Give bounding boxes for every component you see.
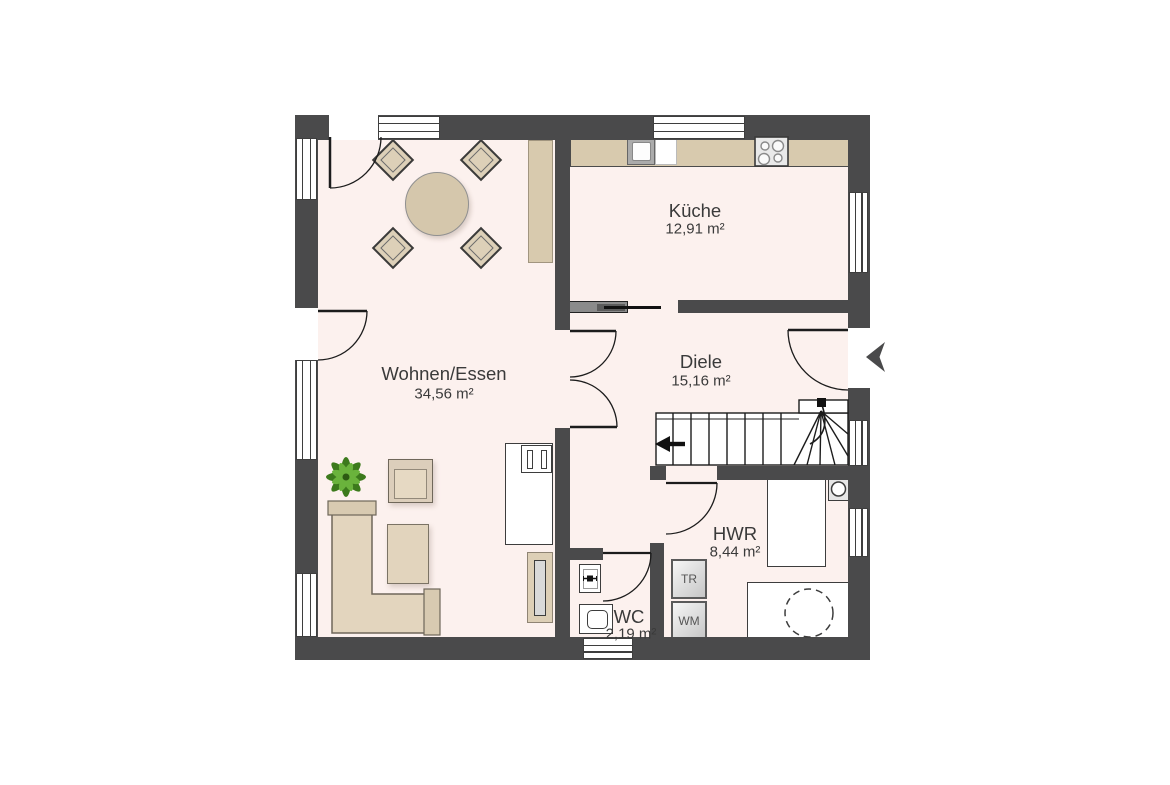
coffee-table xyxy=(387,524,429,584)
kitchen-sink-basin xyxy=(632,142,651,161)
armchair-seat xyxy=(394,469,427,499)
room-label-wohnen-essen: Wohnen/Essen xyxy=(381,363,506,385)
window-hwr-right xyxy=(849,508,868,557)
room-area-wc: 2,19 m² xyxy=(606,625,657,642)
window-stairs-right xyxy=(849,420,868,466)
hwr-sink xyxy=(828,477,849,501)
wall-kitchen-bottom xyxy=(678,300,848,313)
tv-speaker xyxy=(541,450,547,469)
washbasin-inner xyxy=(583,569,598,589)
wall-wc-hwr xyxy=(650,543,664,637)
hwr-cabinet xyxy=(767,476,826,567)
wall-wc-top xyxy=(570,548,603,560)
washer-unit: WM xyxy=(671,601,707,641)
room-label-hwr: HWR xyxy=(713,523,757,545)
dryer-label: TR xyxy=(681,572,697,586)
wall-living-lower xyxy=(555,428,570,637)
room-area-hwr: 8,44 m² xyxy=(710,544,761,561)
window-left-upper xyxy=(296,138,317,200)
sliding-door-track xyxy=(604,306,661,310)
dining-table xyxy=(405,172,469,236)
sideboard-inner xyxy=(534,560,546,616)
window-kitchen-top xyxy=(653,116,745,139)
dryer-unit: TR xyxy=(671,559,707,599)
door-opening-entrance xyxy=(848,328,870,388)
washer-label: WM xyxy=(678,614,699,628)
room-area-kueche: 12,91 m² xyxy=(665,221,724,238)
room-label-kueche: Küche xyxy=(669,200,721,222)
window-dining-top xyxy=(378,116,440,139)
window-left-middle xyxy=(296,360,317,460)
wall-kitchen-living xyxy=(555,140,570,330)
room-area-diele: 15,16 m² xyxy=(671,372,730,389)
wall-below-stairs-b xyxy=(717,466,848,480)
door-opening-terrace xyxy=(295,308,318,360)
kitchen-drainboard xyxy=(655,138,677,165)
wall-below-stairs-a xyxy=(650,466,666,480)
door-opening-top-left xyxy=(329,115,378,140)
tv-speaker-box xyxy=(521,445,552,473)
dining-cabinet xyxy=(528,140,553,263)
window-left-lower xyxy=(296,573,317,637)
floorplan-canvas: TR WM xyxy=(0,0,1170,785)
room-label-diele: Diele xyxy=(680,351,722,373)
room-area-wohnen-essen: 34,56 m² xyxy=(414,385,473,402)
boiler-platform xyxy=(747,582,849,643)
tv-speaker xyxy=(527,450,533,469)
window-kitchen-right xyxy=(849,192,868,273)
